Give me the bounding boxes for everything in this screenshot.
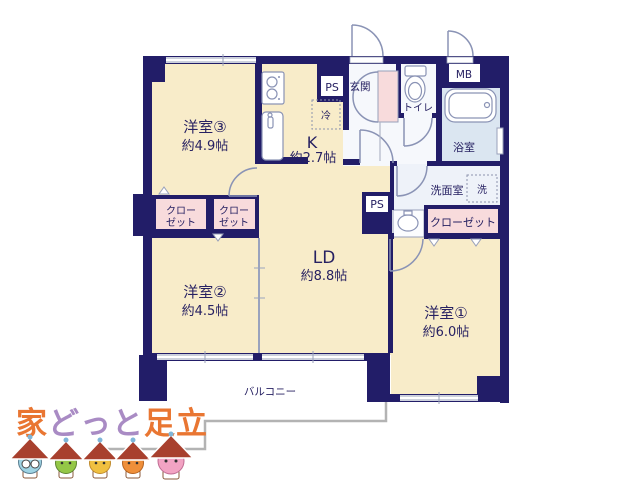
floor-plan-page: 洋室③ 約4.9帖 K 約2.7帖 LD 約8.8帖 洋室② 約4.5帖 洋室①… [0,0,640,480]
washer-label: 洗 [477,184,487,196]
floor-plan: 洋室③ 約4.9帖 K 約2.7帖 LD 約8.8帖 洋室② 約4.5帖 洋室①… [0,0,640,480]
ps2-block [362,214,392,234]
mascot-2 [48,438,84,479]
room2-size-label: 約4.5帖 [182,304,229,319]
mascot-4 [115,438,151,479]
mb-label: MB [456,69,472,81]
room1-size-label: 約6.0帖 [423,325,470,340]
logo-text: 家どっと足立 [16,406,208,442]
ld-name-label: LD [313,248,336,268]
bathtub-icon [445,89,496,122]
toilet-label: トイレ [403,103,433,114]
bathroom-label: 浴室 [453,140,475,154]
entrance-label: 玄関 [350,80,371,93]
wall-washroom-top-b [427,161,500,166]
wall-toilet-bottom-b [432,113,440,118]
wall-kitchen-divider [255,56,262,162]
ld-size-label: 約8.8帖 [301,269,348,284]
wall-room2-top [143,233,259,238]
closet1-label-line2: ゼット [166,217,196,229]
ps-label: PS [325,81,339,94]
pillar-bottom-left [139,355,167,401]
pillar-bottom-right [477,376,501,402]
room3-size-label: 約4.9帖 [182,139,229,154]
sink-icon [262,112,283,160]
bath-rack [497,128,503,154]
wall-left-bump [133,194,152,236]
closet2-label-line1: クロー [219,205,249,217]
logo-text-part2: どっと [48,406,144,442]
closet1-label-line1: クロー [166,205,196,217]
stove-icon [262,72,284,104]
balcony-label: バルコニー [244,386,296,398]
mb-door-arc [448,31,473,56]
room3-name-label: 洋室③ [183,118,226,136]
entrance-door-arc [352,25,383,56]
room2-name-label: 洋室② [183,283,226,301]
wall-hall-bath [436,56,442,166]
mascot-3 [82,438,118,479]
kitchen-name-label: K [307,133,318,152]
entrance-doorway [350,57,383,63]
kitchen-size-label: 約2.7帖 [290,151,337,166]
room1-name-label: 洋室① [424,304,467,322]
fridge-label: 冷 [321,109,331,122]
mb-doorway [447,57,473,63]
washroom-label: 洗面室 [431,183,464,197]
toilet-icon [405,66,426,102]
shoe-cabinet [378,71,398,122]
pillar-top-left [143,56,165,82]
ps2-label: PS [370,198,384,211]
wall-hall-ld-stub [343,159,360,165]
closet2-label-line2: ゼット [219,217,249,229]
logo: 家どっと足立 [10,406,208,479]
closet3-label: クローゼット [430,216,496,229]
logo-text-part3: 足立 [144,406,208,442]
